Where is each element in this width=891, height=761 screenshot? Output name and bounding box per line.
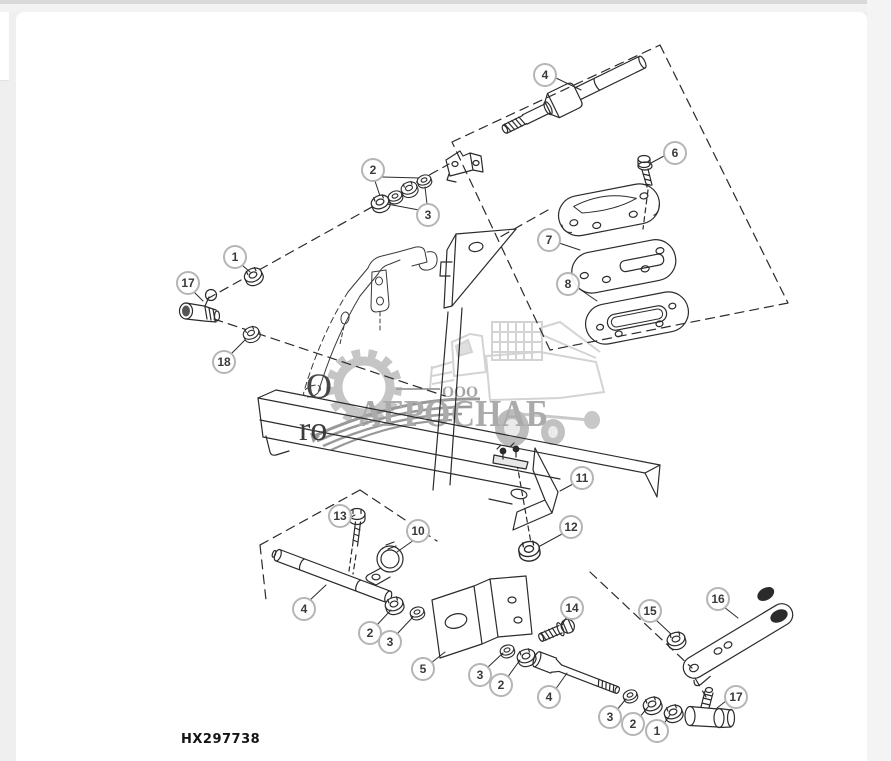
parts-catalog-page: ООО АГРОСНАБ: [0, 0, 891, 761]
callout-2: 2: [489, 673, 513, 697]
callout-5: 5: [411, 657, 435, 681]
callout-4: 4: [537, 685, 561, 709]
callout-4: 4: [292, 597, 316, 621]
callout-17: 17: [724, 685, 748, 709]
callout-4: 4: [533, 63, 557, 87]
callout-12: 12: [559, 515, 583, 539]
callout-10: 10: [406, 519, 430, 543]
callout-18: 18: [212, 350, 236, 374]
callout-3: 3: [378, 630, 402, 654]
callout-11: 11: [570, 466, 594, 490]
callout-7: 7: [537, 228, 561, 252]
callout-3: 3: [416, 203, 440, 227]
callout-15: 15: [638, 599, 662, 623]
callout-6: 6: [663, 141, 687, 165]
callout-2: 2: [361, 158, 385, 182]
callout-8: 8: [556, 272, 580, 296]
callout-1: 1: [223, 245, 247, 269]
callout-1: 1: [645, 719, 669, 743]
callout-17: 17: [176, 271, 200, 295]
callout-layer: 4623117187811121310423514324151617321: [0, 0, 891, 761]
callout-2: 2: [621, 712, 645, 736]
drawing-code-label: HX297738: [181, 732, 260, 747]
callout-3: 3: [598, 705, 622, 729]
callout-14: 14: [560, 596, 584, 620]
callout-16: 16: [706, 587, 730, 611]
callout-13: 13: [328, 504, 352, 528]
